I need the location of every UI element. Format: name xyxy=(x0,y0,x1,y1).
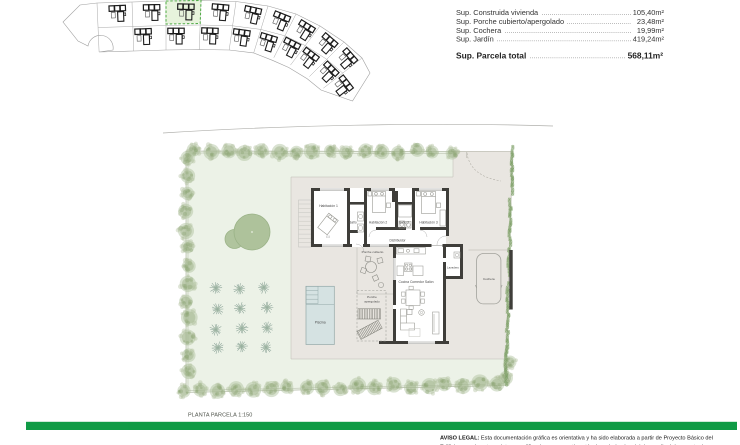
svg-text:419,24m²: 419,24m² xyxy=(633,35,665,44)
svg-text:Cochera: Cochera xyxy=(483,277,495,281)
svg-text:Baño 2: Baño 2 xyxy=(399,221,409,225)
svg-text:Piscina: Piscina xyxy=(315,321,326,325)
svg-text:AVISO LEGAL: Esta documentació: AVISO LEGAL: Esta documentación gráfica … xyxy=(440,436,713,442)
svg-text:Porche cubierto: Porche cubierto xyxy=(362,250,384,254)
svg-text:apergolado: apergolado xyxy=(364,299,380,303)
svg-text:23,48m²: 23,48m² xyxy=(637,17,665,26)
svg-text:Distribuidor: Distribuidor xyxy=(389,238,406,242)
svg-text:Lavadero: Lavadero xyxy=(447,265,459,269)
svg-text:105,40m²: 105,40m² xyxy=(633,8,665,17)
svg-text:Habitación 2: Habitación 2 xyxy=(369,221,387,225)
svg-text:Habitación 1: Habitación 1 xyxy=(319,204,338,208)
svg-text:Habitación 3: Habitación 3 xyxy=(419,221,437,225)
svg-text:568,11m²: 568,11m² xyxy=(628,51,664,61)
svg-text:Sup. Jardín: Sup. Jardín xyxy=(456,35,494,44)
svg-text:Baño: Baño xyxy=(349,221,357,225)
svg-text:(1): (1) xyxy=(326,235,330,239)
svg-text:PLANTA PARCELA 1:150: PLANTA PARCELA 1:150 xyxy=(188,413,252,419)
svg-text:Sup. Porche cubierto/apergolad: Sup. Porche cubierto/apergolado xyxy=(456,17,564,26)
svg-text:Cocina Comedor Salón: Cocina Comedor Salón xyxy=(398,280,433,284)
svg-text:Sup. Construida vivienda: Sup. Construida vivienda xyxy=(456,8,539,17)
svg-text:Sup. Parcela total: Sup. Parcela total xyxy=(456,51,526,61)
